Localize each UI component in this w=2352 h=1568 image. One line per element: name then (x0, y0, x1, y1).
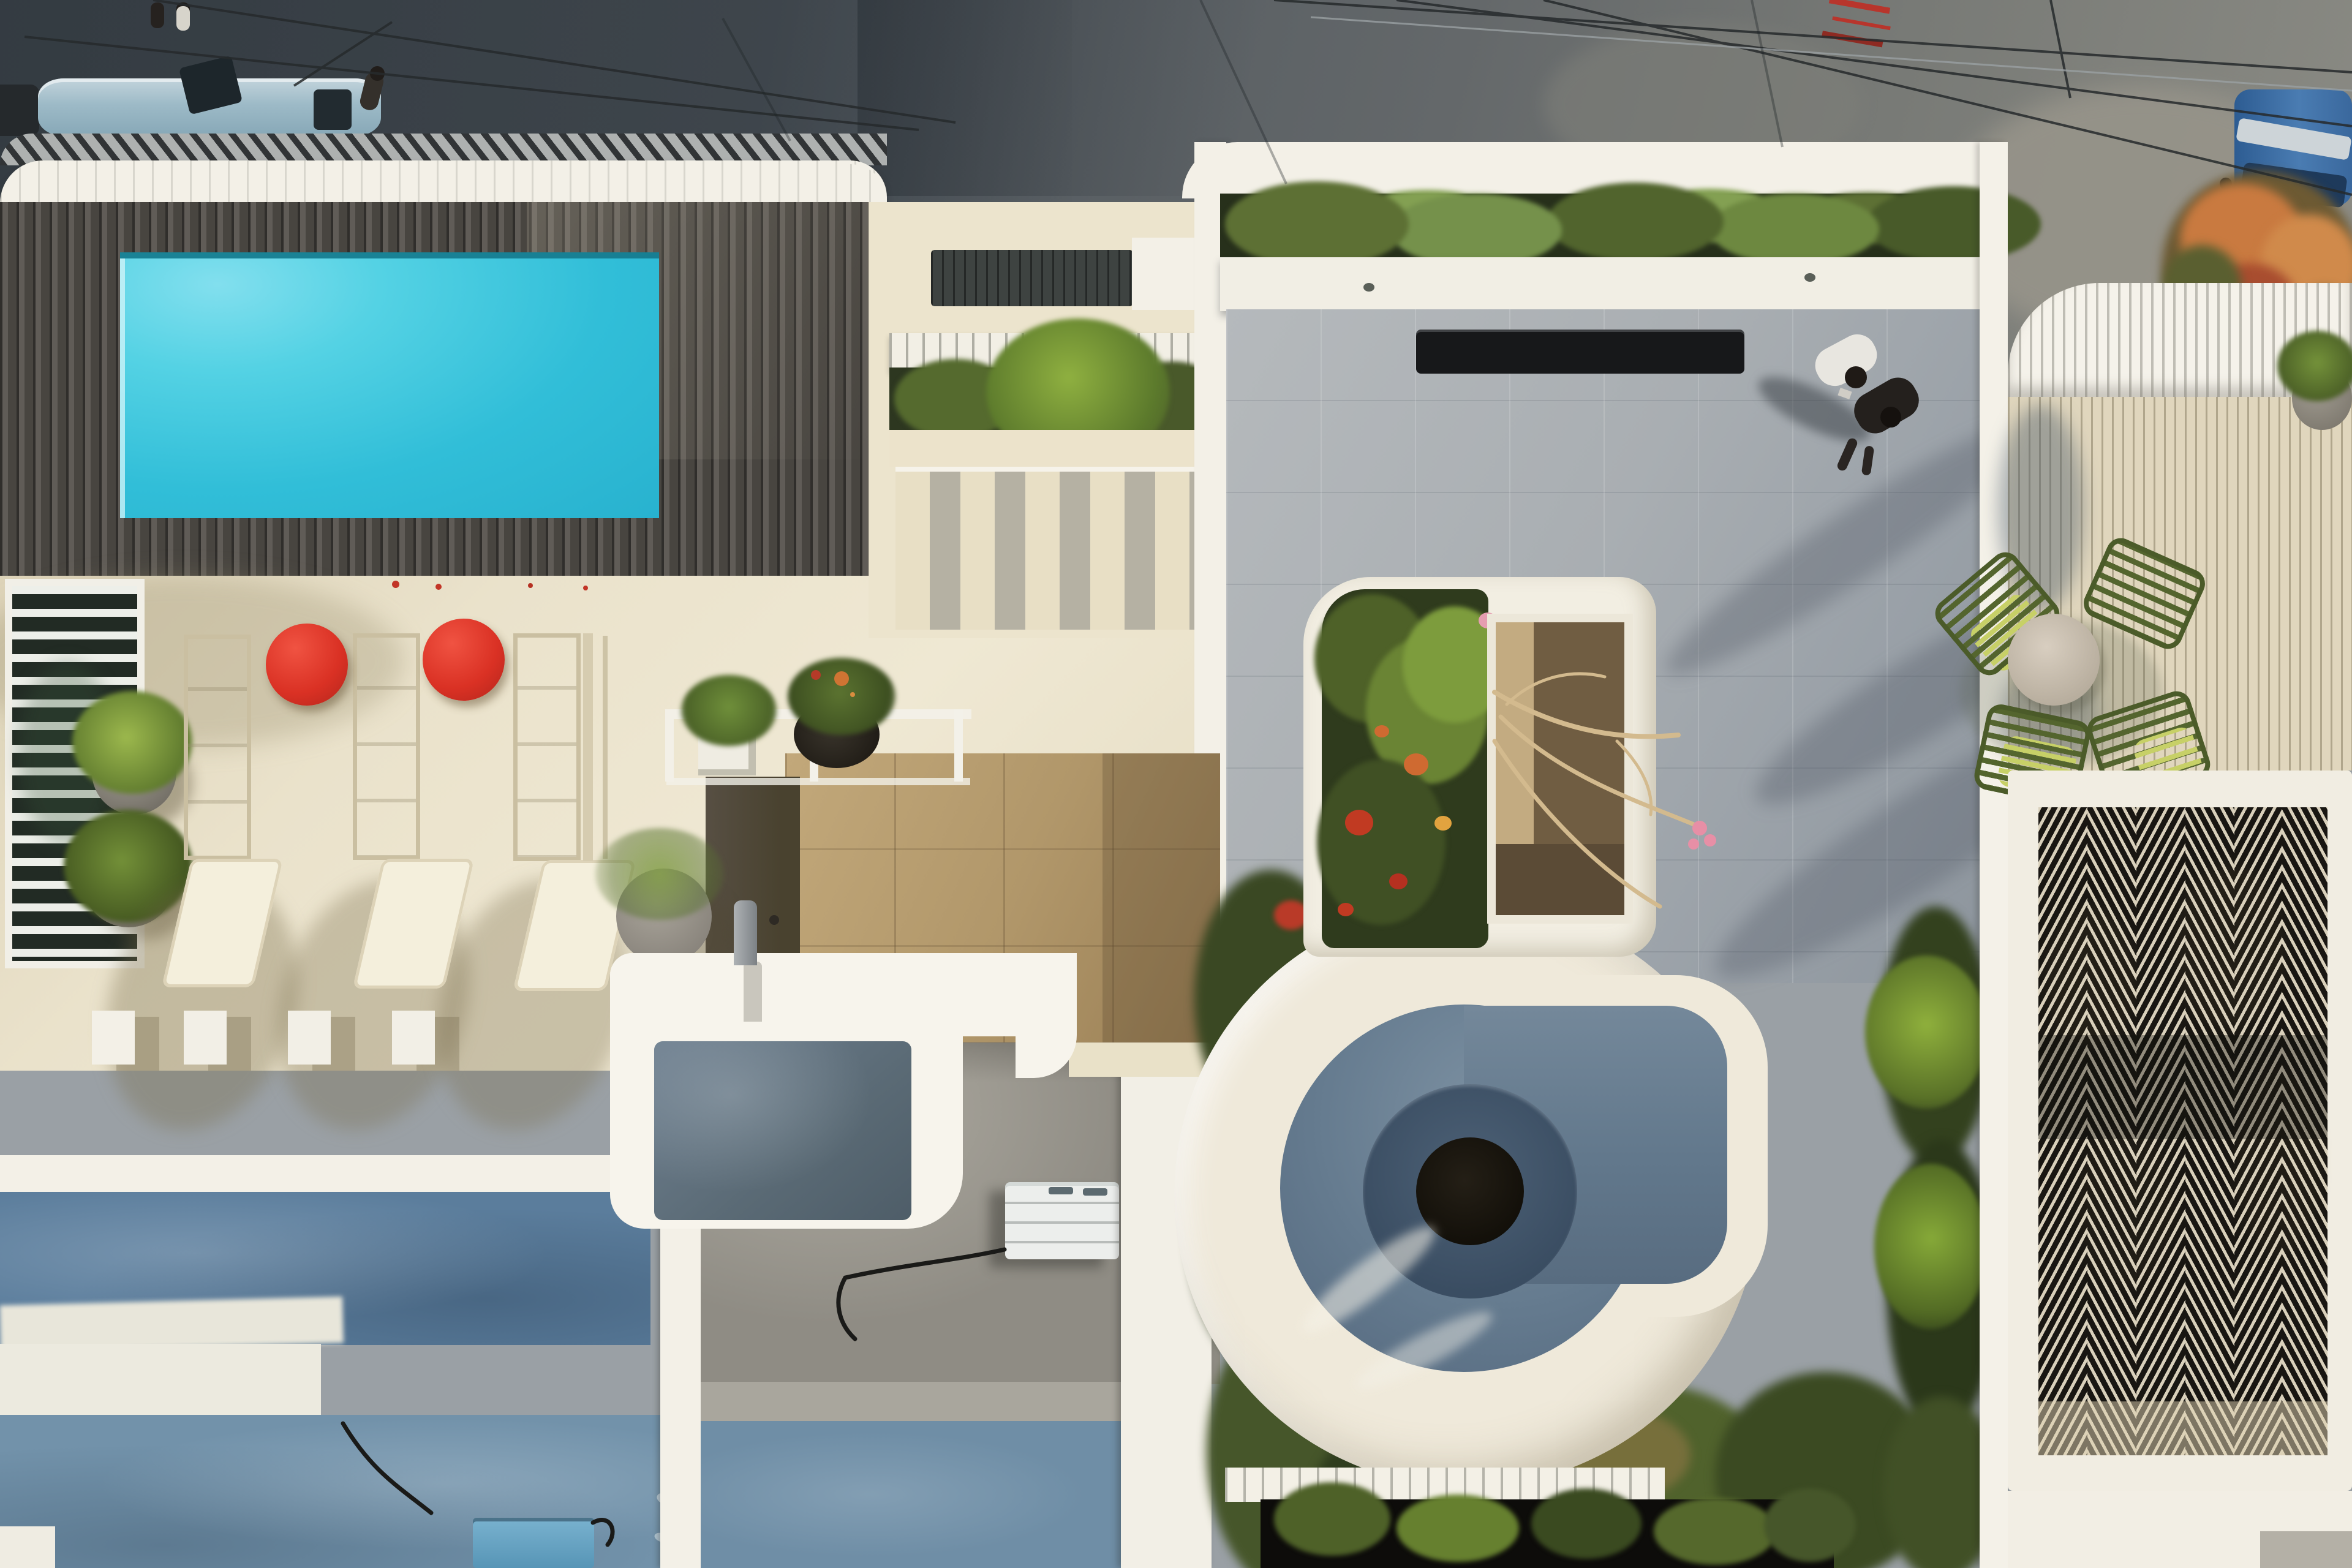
sun-lounger-2-back (353, 633, 420, 860)
bright-plant-right-2 (1874, 1164, 1988, 1329)
downlight-2 (1804, 273, 1815, 282)
stair-fascia (889, 430, 1220, 467)
box-vents (1049, 1187, 1073, 1194)
faucet-handle-dot (769, 915, 779, 925)
downlight-1 (1363, 283, 1374, 292)
lounger-frame-pole (583, 633, 593, 861)
right-west-beam (1980, 142, 2008, 1568)
bowl-pot-plant (788, 658, 895, 735)
round-table (2008, 614, 2100, 706)
bush-flower-orange (1404, 753, 1428, 775)
vine-4 (1654, 1498, 1776, 1565)
right-pot-plant (2277, 331, 2352, 401)
pedestrian-3 (176, 6, 190, 31)
pedestrian-2 (151, 2, 164, 28)
herr-bottom-light (2038, 1401, 2327, 1455)
vine-3 (1531, 1488, 1642, 1559)
empty-box-dark-bottom (1496, 844, 1624, 915)
red-side-table-2 (423, 619, 505, 701)
rooftop-aerial-photo (0, 0, 2352, 1568)
dark-mat (931, 250, 1133, 306)
car-seat-dark (314, 89, 352, 130)
parked-car-dark (0, 85, 39, 136)
shelf-posts (665, 709, 674, 782)
bush-blob-3 (1317, 759, 1445, 925)
bush-flower-red-1 (1345, 810, 1373, 835)
vine-2 (1396, 1494, 1519, 1562)
red-side-table-1 (266, 624, 348, 706)
stone-steps (895, 467, 1220, 630)
cube-pot-plant (681, 675, 777, 746)
sink-faucet (734, 900, 757, 965)
white-ledge-L (0, 1344, 321, 1417)
bottom-right-gray (2260, 1531, 2352, 1568)
herr-dark-band (2038, 1035, 2327, 1139)
concrete-ledge (701, 1382, 1123, 1421)
counter-front-panel (654, 1041, 911, 1220)
person-dark-head (1880, 407, 1901, 428)
parapet-foliage (1225, 181, 1409, 267)
deck-flower-specks (392, 581, 399, 588)
counter-arm (1016, 953, 1077, 1078)
blue-gray-floor-mid (701, 1421, 1123, 1568)
vine-1 (1274, 1482, 1390, 1556)
pedestrian-1-head (370, 66, 385, 81)
blue-equipment-box (473, 1518, 594, 1568)
sun-lounger-1-back (184, 635, 251, 860)
pool-railing (0, 160, 887, 205)
terrace-inner-fascia (1220, 257, 1981, 311)
person-white-head (1845, 366, 1867, 388)
bright-plant-right-1 (1865, 956, 1988, 1109)
sun-lounger-3-back (513, 633, 581, 861)
vine-5 (1764, 1488, 1856, 1562)
corner-white-wedge (0, 1526, 55, 1568)
plant-1 (72, 691, 192, 794)
vent-black (1416, 330, 1744, 374)
roof-posts (92, 1011, 135, 1065)
lower-fascia-west (0, 1155, 663, 1192)
round-pot-plant (595, 828, 724, 920)
bowl-plant-flowers (834, 671, 849, 686)
swimming-pool (120, 252, 659, 518)
